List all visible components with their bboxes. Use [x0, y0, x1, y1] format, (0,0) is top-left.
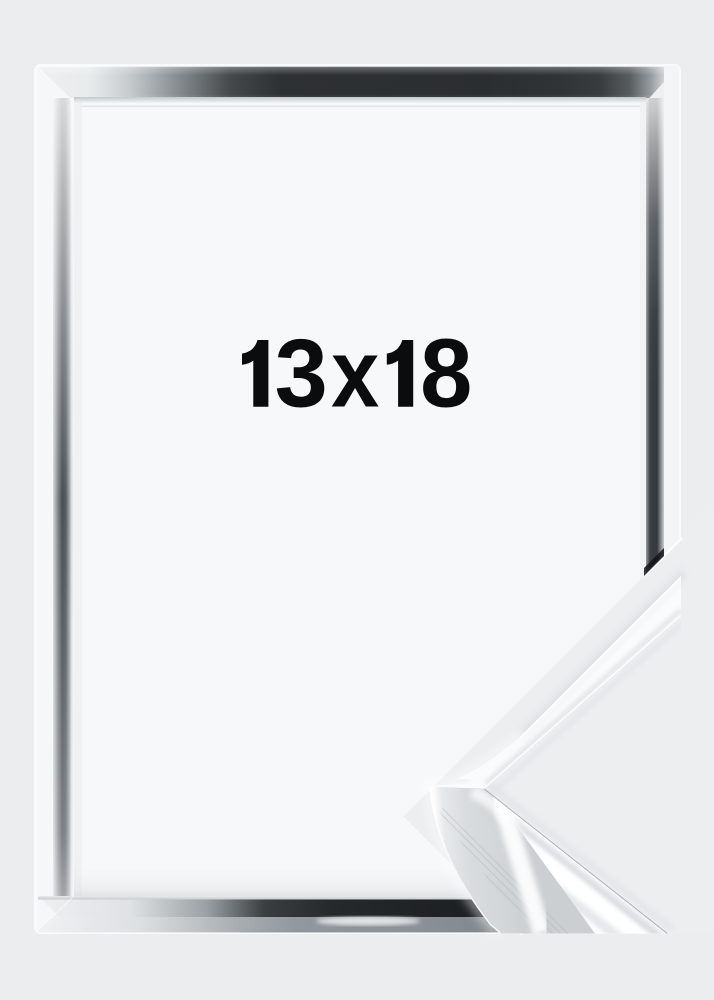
- svg-text:3: 3: [275, 320, 328, 428]
- svg-text:8: 8: [420, 320, 472, 428]
- svg-text:x: x: [331, 320, 379, 428]
